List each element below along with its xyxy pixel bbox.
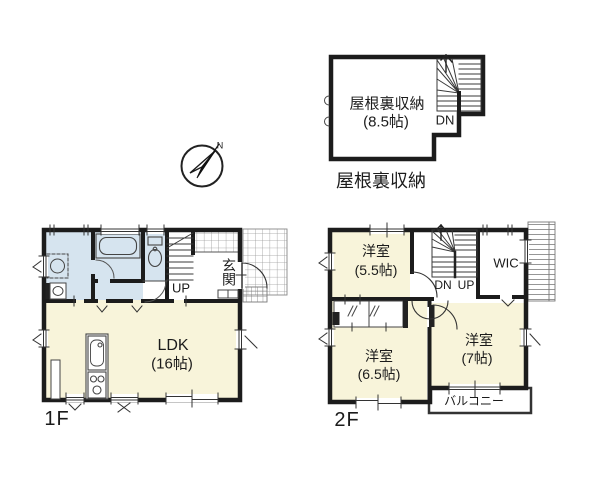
floorplan-canvas	[0, 0, 600, 501]
f2-room65-size: (6.5帖)	[358, 367, 401, 381]
f2-wic-label: WIC	[493, 257, 518, 270]
f1-entrance-label: 玄関	[222, 258, 236, 286]
porch-step	[243, 287, 267, 302]
f1-floor-label: 1F	[44, 409, 69, 429]
attic-room-label: 屋根裏収納	[349, 97, 424, 112]
roof-hatch	[528, 222, 555, 301]
ldk-floor	[46, 300, 238, 398]
attic-window-marks	[325, 96, 330, 126]
f1-ldk-size: (16帖)	[151, 357, 193, 372]
attic-room-size: (8.5帖)	[363, 115, 409, 130]
floorplan-screenshot: 屋根裏収納 (8.5帖) DN 屋根裏収納 N UP 玄関 LDK (16帖) …	[0, 0, 600, 501]
f2-up-label: UP	[458, 279, 475, 291]
f1-stairs	[167, 233, 193, 280]
second-floor-plan	[319, 222, 555, 413]
first-floor-plan	[33, 225, 287, 412]
f2-room55-label: 洋室	[362, 244, 390, 258]
toilet-door-arc	[145, 281, 166, 302]
f2-room65-label: 洋室	[365, 349, 393, 363]
attic-dn-label: DN	[436, 114, 455, 127]
toilet-floor	[143, 232, 167, 281]
kitchen-counter	[86, 334, 108, 399]
attic-caption: 屋根裏収納	[336, 172, 426, 190]
compass-north-label: N	[217, 142, 224, 151]
f1-up-label: UP	[172, 282, 190, 295]
room7-door-leaf	[429, 305, 435, 327]
f1-ldk-label: LDK	[157, 338, 188, 354]
shoe-cabinet	[218, 290, 238, 298]
ldk-cabinet	[51, 360, 60, 399]
f2-dn-label: DN	[434, 279, 451, 291]
entrance-porch-tiles	[243, 229, 287, 295]
f2-room7-label: 洋室	[465, 333, 493, 347]
vanity-unit	[46, 283, 67, 299]
f2-room7-size: (7帖)	[461, 351, 492, 365]
f2-room55-size: (5.5帖)	[355, 263, 398, 277]
f2-floor-label: 2F	[334, 410, 359, 430]
entrance-tile-strip	[195, 232, 238, 252]
f2-balcony-label: バルコニー	[444, 395, 504, 407]
